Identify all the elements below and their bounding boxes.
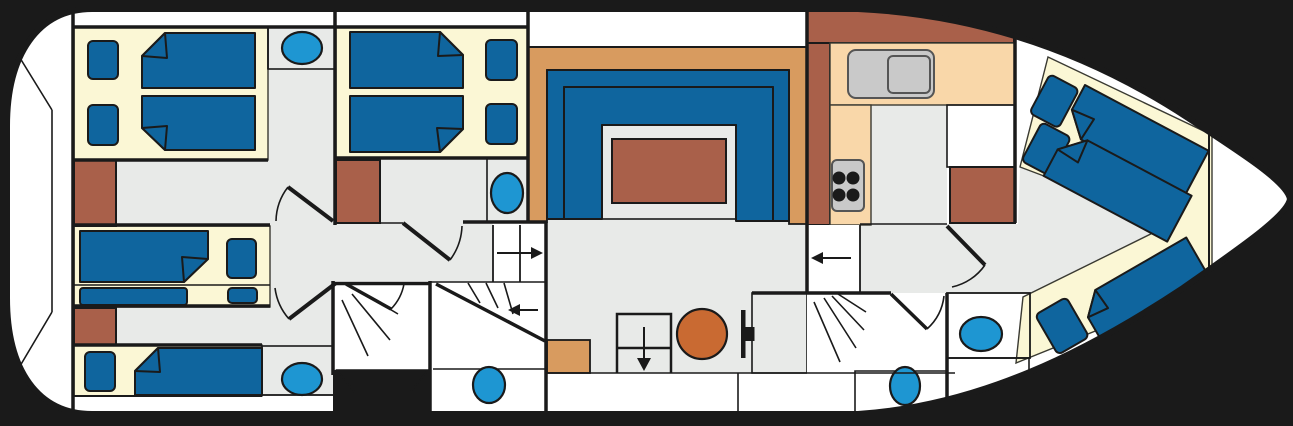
step-block — [547, 340, 590, 373]
toilet — [473, 367, 505, 403]
stairs-mid — [493, 223, 547, 282]
shower-room-1 — [333, 281, 430, 417]
burner — [847, 189, 860, 202]
burner — [847, 172, 860, 185]
wardrobe — [74, 160, 116, 226]
side-deck-top-saloon — [528, 9, 807, 47]
washbasin — [282, 32, 322, 64]
galley-cabinet — [950, 167, 1015, 223]
pillow — [228, 288, 257, 303]
wardrobe — [336, 160, 380, 223]
shower-room-2 — [807, 293, 947, 413]
washbasin — [491, 173, 523, 213]
pillow — [88, 105, 118, 145]
washbasin — [960, 317, 1002, 351]
stairs-aft — [807, 225, 860, 293]
pillow — [85, 352, 115, 391]
boat-floor-plan — [0, 0, 1293, 426]
steering-wheel — [741, 310, 746, 358]
pillow — [227, 239, 256, 278]
washbasin — [282, 363, 322, 395]
wc-room — [431, 282, 546, 417]
galley-sink-bowl — [888, 56, 930, 93]
wardrobe — [74, 308, 116, 345]
wheel-hub — [746, 327, 755, 341]
saloon-table — [612, 139, 726, 203]
burner — [833, 172, 846, 185]
pillow — [486, 104, 517, 144]
berth-lower-bunk — [80, 288, 187, 305]
stove — [832, 160, 864, 211]
shower-room — [807, 293, 947, 413]
bunk-cabin — [74, 226, 270, 307]
floor-plan-svg — [0, 0, 1293, 426]
pillow — [486, 40, 517, 80]
burner — [833, 189, 846, 202]
pillow — [88, 41, 118, 79]
round-stool — [677, 309, 727, 359]
galley-cabinet-side — [807, 43, 830, 225]
